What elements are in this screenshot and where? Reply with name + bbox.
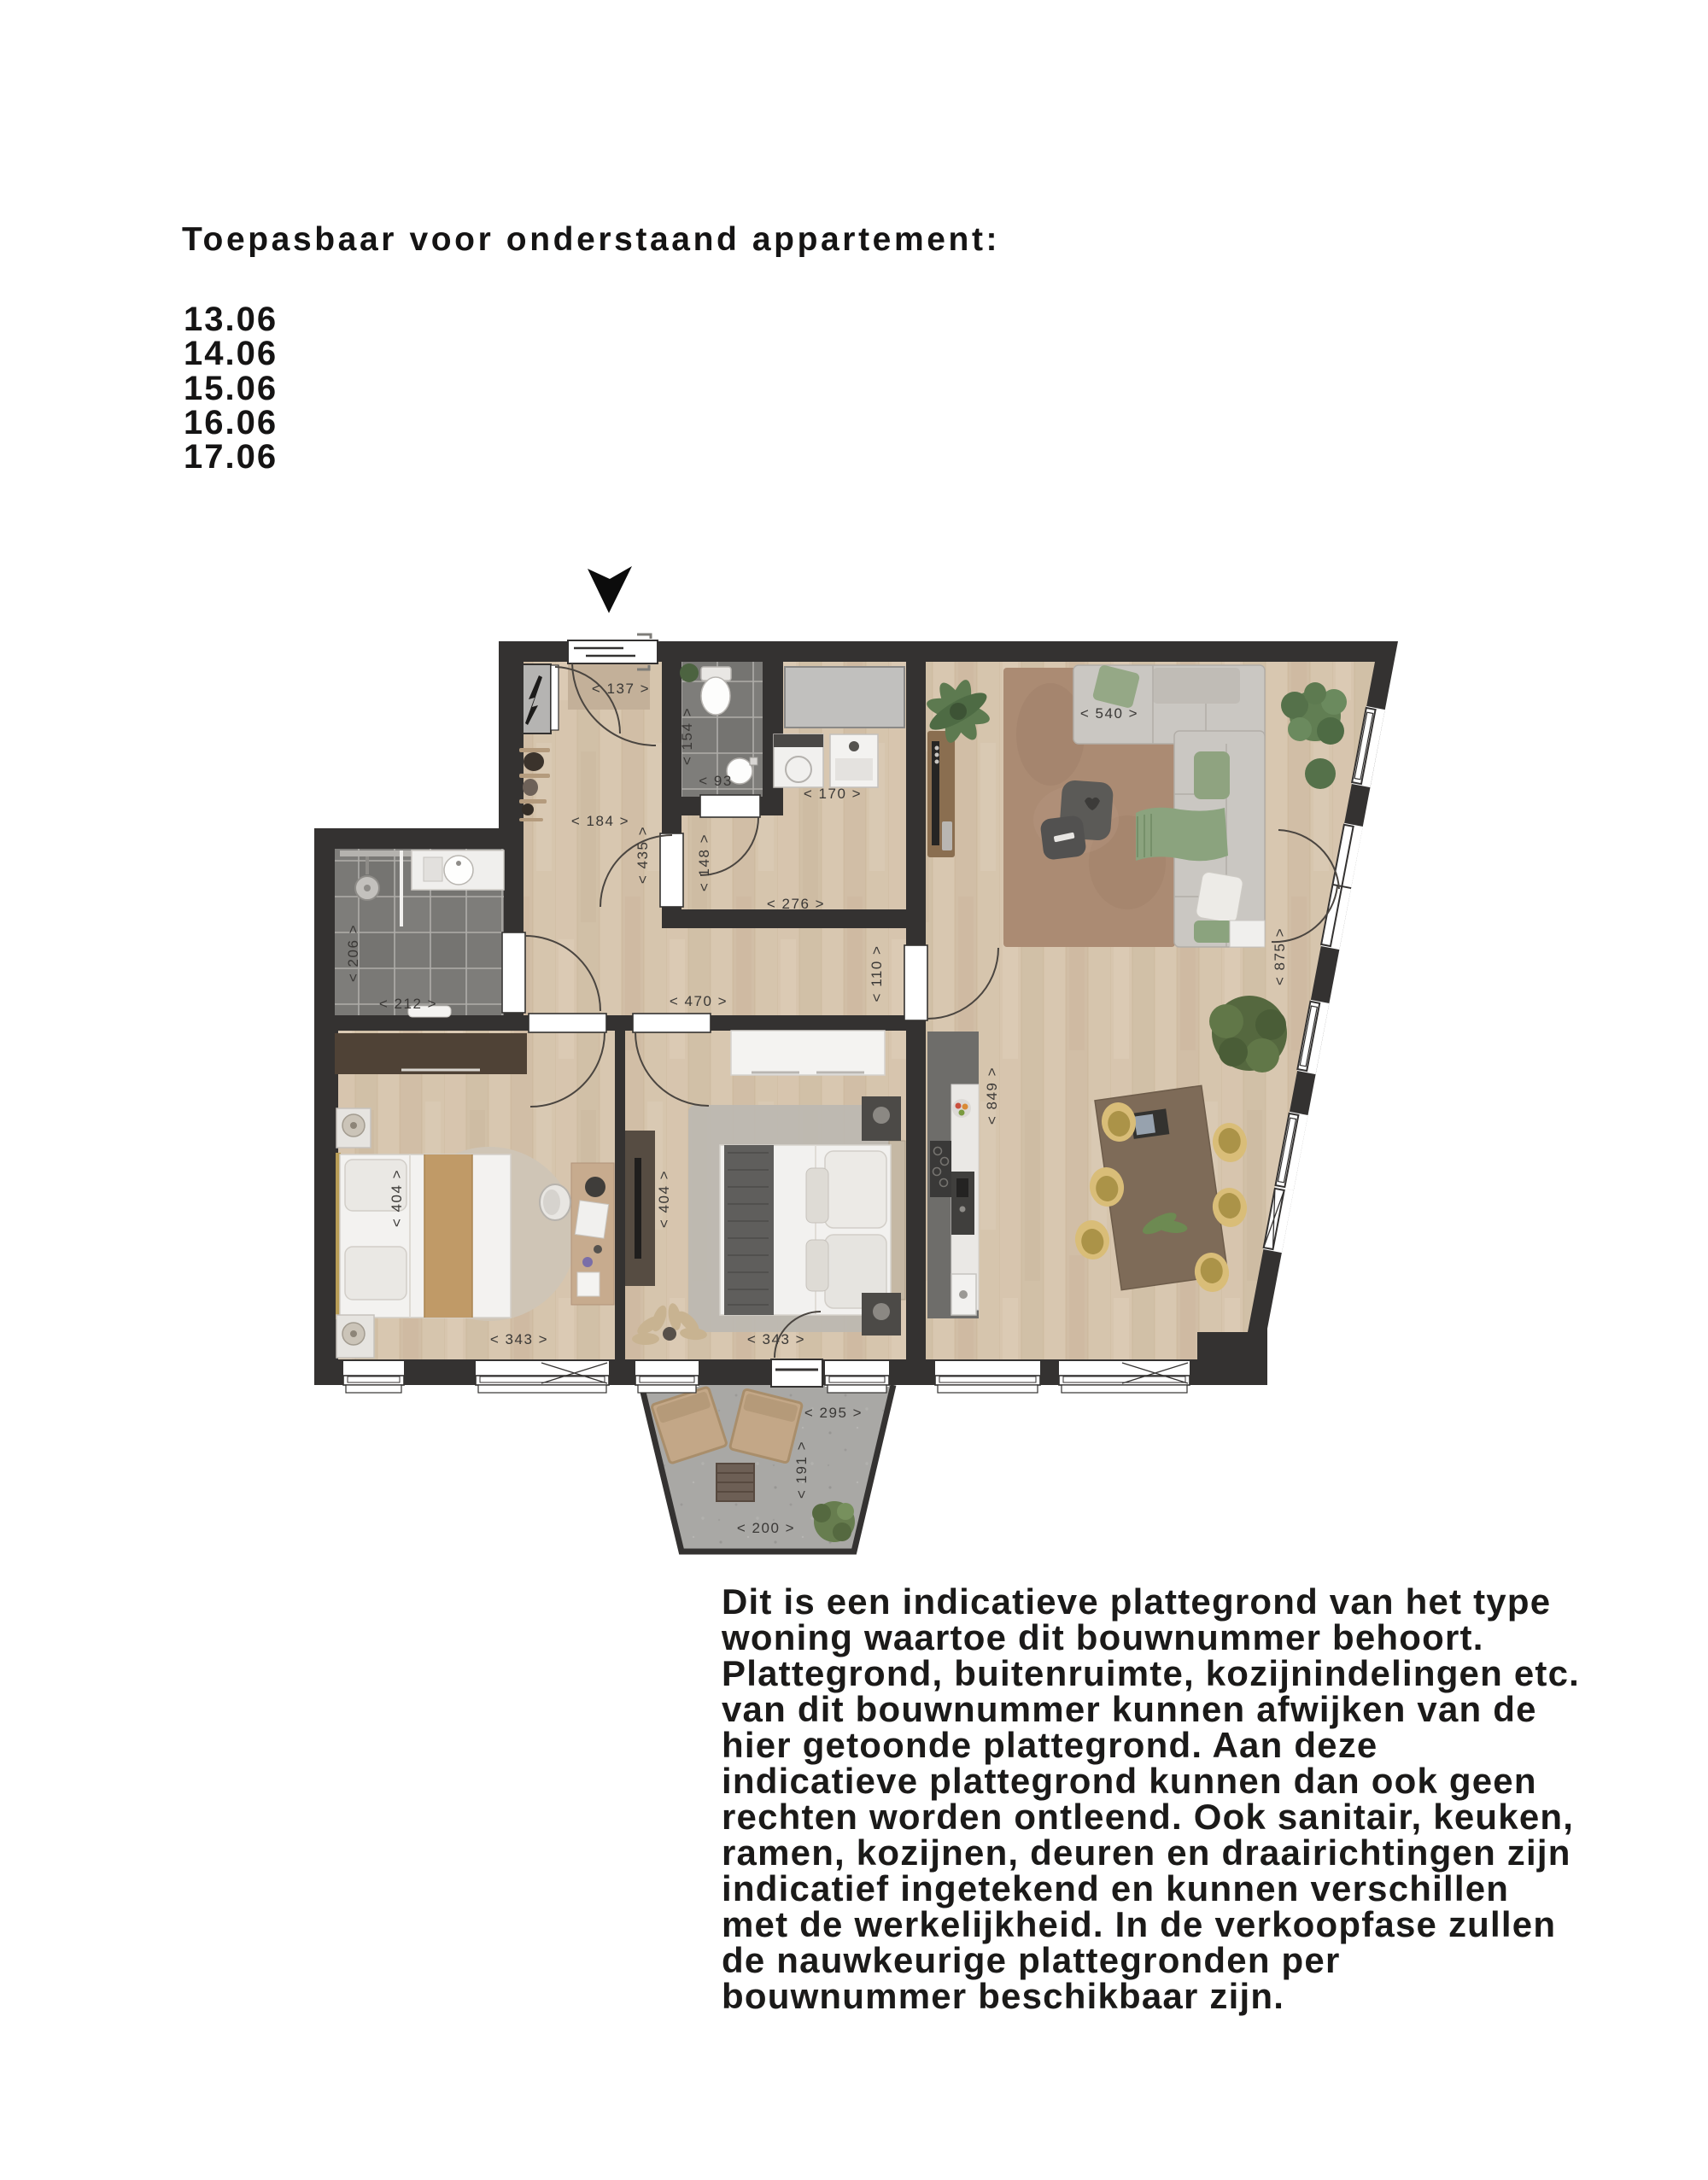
svg-text:met de werkelijkheid. In de ve: met de werkelijkheid. In de verkoopfase … (722, 1904, 1556, 1944)
svg-text:< 435 >: < 435 > (635, 826, 651, 884)
svg-text:< 276 >: < 276 > (767, 896, 825, 912)
svg-text:< 343 >: < 343 > (747, 1331, 805, 1347)
svg-text:16.06: 16.06 (184, 404, 278, 441)
svg-text:< 191 >: < 191 > (793, 1441, 810, 1499)
svg-text:Toepasbaar voor onderstaand ap: Toepasbaar voor onderstaand appartement: (182, 221, 1000, 258)
svg-text:hier getoonde plattegrond. Aan: hier getoonde plattegrond. Aan deze (722, 1725, 1378, 1765)
svg-text:Dit is een indicatieve platteg: Dit is een indicatieve plattegrond van h… (722, 1581, 1551, 1622)
svg-text:< 137 >: < 137 > (592, 681, 650, 697)
svg-text:bouwnummer beschikbaar zijn.: bouwnummer beschikbaar zijn. (722, 1976, 1284, 2016)
svg-text:< 206 >: < 206 > (345, 924, 361, 982)
svg-text:indicatieve plattegrond kunnen: indicatieve plattegrond kunnen dan ook g… (722, 1761, 1537, 1801)
svg-text:< 154 >: < 154 > (679, 707, 695, 765)
svg-text:rechten worden ontleend. Ook s: rechten worden ontleend. Ook sanitair, k… (722, 1797, 1574, 1837)
svg-text:17.06: 17.06 (184, 438, 278, 476)
svg-text:< 343 >: < 343 > (490, 1331, 548, 1347)
svg-text:< 148 >: < 148 > (696, 833, 712, 891)
svg-text:< 200 >: < 200 > (737, 1520, 795, 1536)
svg-text:de nauwkeurige plattegronden p: de nauwkeurige plattegronden per (722, 1940, 1341, 1980)
svg-text:< 110 >: < 110 > (869, 945, 885, 1002)
svg-text:14.06: 14.06 (184, 335, 278, 372)
svg-text:< 875 >: < 875 > (1272, 927, 1288, 985)
svg-text:indicatief ingetekend en kunne: indicatief ingetekend en kunnen verschil… (722, 1868, 1509, 1908)
svg-text:< 295 >: < 295 > (804, 1405, 863, 1421)
svg-text:< 93: < 93 (699, 773, 733, 789)
svg-text:ramen, kozijnen, deuren en dra: ramen, kozijnen, deuren en draairichting… (722, 1832, 1571, 1873)
svg-text:13.06: 13.06 (184, 301, 278, 338)
svg-text:< 170 >: < 170 > (804, 786, 862, 802)
svg-text:< 404 >: < 404 > (389, 1169, 405, 1227)
svg-text:< 404 >: < 404 > (656, 1170, 672, 1228)
svg-text:< 470 >: < 470 > (670, 993, 728, 1009)
svg-text:woning waartoe dit bouwnummer: woning waartoe dit bouwnummer behoort. (721, 1617, 1484, 1657)
svg-text:< 184 >: < 184 > (571, 813, 629, 829)
svg-text:< 540 >: < 540 > (1080, 705, 1138, 722)
svg-text:van dit bouwnummer kunnen afwi: van dit bouwnummer kunnen afwijken van d… (722, 1689, 1537, 1729)
svg-text:< 849 >: < 849 > (984, 1067, 1000, 1125)
svg-text:Plattegrond, buitenruimte, koz: Plattegrond, buitenruimte, kozijnindelin… (722, 1653, 1580, 1693)
svg-text:< 212 >: < 212 > (379, 996, 437, 1012)
svg-text:15.06: 15.06 (184, 370, 278, 407)
